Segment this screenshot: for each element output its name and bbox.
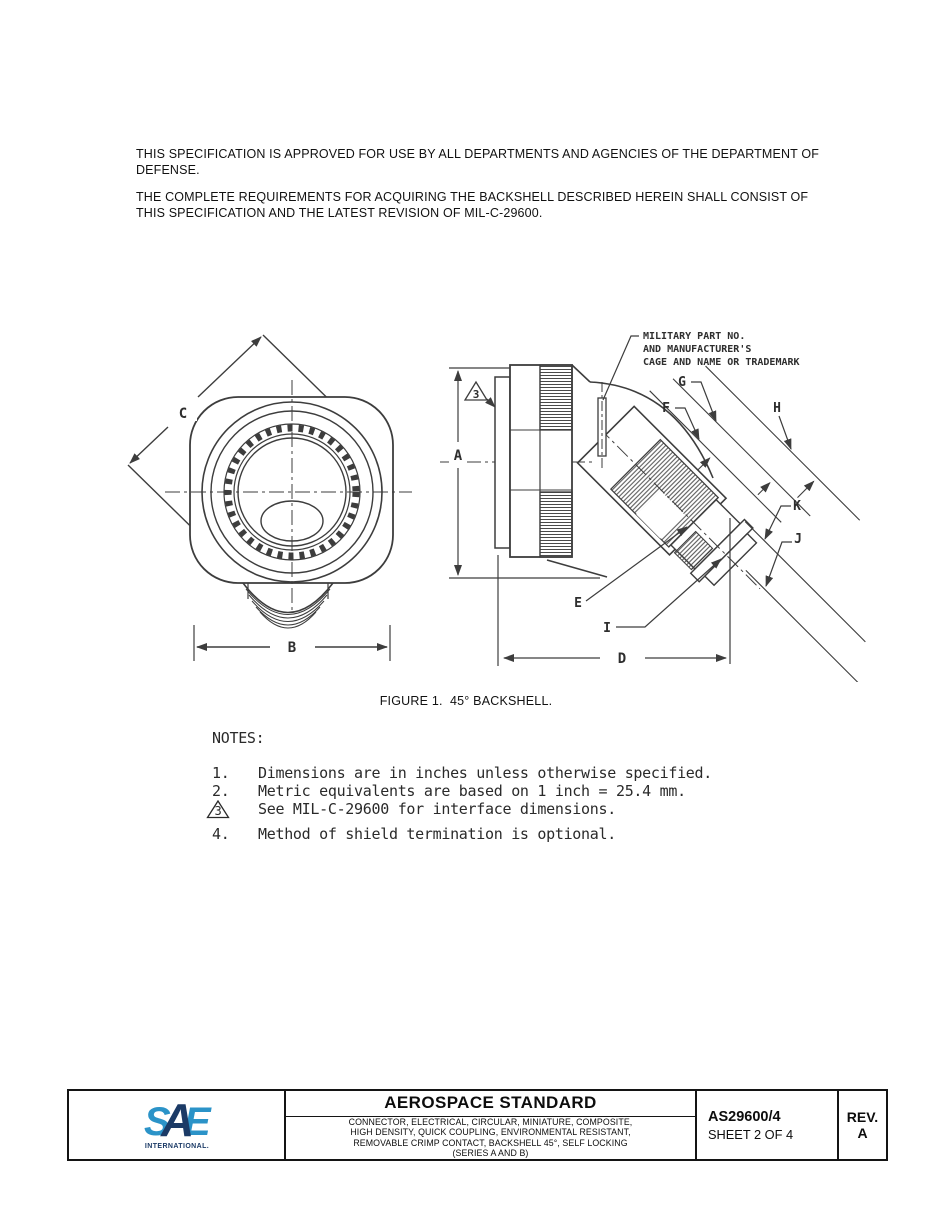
figure-1-drawing: C B: [110, 320, 890, 682]
document-number: AS29600/4: [708, 1109, 837, 1125]
note-flag-leader: [487, 399, 495, 407]
approval-paragraph: THIS SPECIFICATION IS APPROVED FOR USE B…: [136, 147, 826, 178]
description-line: HIGH DENSITY, QUICK COUPLING, ENVIRONMEN…: [350, 1127, 630, 1138]
notes-section: NOTES: 1. Dimensions are in inches unles…: [212, 729, 712, 845]
angled-tube-assembly: [571, 343, 870, 682]
logo-letter-a: A: [160, 1099, 194, 1146]
notes-heading: NOTES:: [212, 729, 712, 747]
dim-label-f: F: [662, 401, 670, 416]
description-line: (SERIES A AND B): [453, 1148, 529, 1159]
dim-label-i: I: [603, 621, 611, 636]
sheet-number: SHEET 2 OF 4: [708, 1127, 837, 1142]
interface-flange: [495, 377, 510, 548]
callout-line-2: AND MANUFACTURER'S: [643, 344, 751, 355]
note-number: 3: [212, 802, 258, 827]
note-flag-number: 3: [473, 388, 480, 401]
dim-label-a: A: [454, 448, 463, 464]
dim-label-h: H: [773, 401, 781, 416]
note-text: Method of shield termination is optional…: [258, 827, 712, 845]
dim-label-j: J: [794, 532, 802, 547]
thread-line: [256, 607, 320, 625]
requirements-paragraph: THE COMPLETE REQUIREMENTS FOR ACQUIRING …: [136, 190, 836, 221]
backshell-front-view: C B: [110, 325, 420, 670]
figure-caption: FIGURE 1. 45° BACKSHELL.: [136, 694, 796, 708]
dim-label-c: C: [179, 406, 187, 422]
document-page: { "intro": { "p1": "THIS SPECIFICATION I…: [0, 0, 950, 1230]
revision-value: A: [857, 1125, 867, 1141]
callout-line-1: MILITARY PART NO.: [643, 331, 745, 342]
thread-line: [246, 589, 330, 615]
note-number: 4.: [212, 827, 258, 845]
revision-label: REV.: [847, 1109, 878, 1125]
knurl-band-bottom: [540, 492, 572, 557]
description-line: REMOVABLE CRIMP CONTACT, BACKSHELL 45°, …: [353, 1138, 627, 1149]
backshell-side-view: A 3 MILITARY PART NO. AND MANUFACTURER'S…: [435, 320, 870, 682]
title-block: S E A INTERNATIONAL. AEROSPACE STANDARD …: [67, 1089, 888, 1161]
notes-list: 1. Dimensions are in inches unless other…: [212, 766, 712, 845]
note-flag-triangle-icon: 3: [206, 800, 230, 822]
note-item: 3 See MIL-C-29600 for interface dimensio…: [212, 802, 712, 827]
dim-label-d: D: [618, 651, 626, 667]
part-number-callout: MILITARY PART NO. AND MANUFACTURER'S CAG…: [643, 331, 800, 368]
svg-text:3: 3: [215, 804, 222, 818]
description-line: CONNECTOR, ELECTRICAL, CIRCULAR, MINIATU…: [349, 1117, 633, 1128]
dim-c-line: [130, 427, 168, 463]
document-number-cell: AS29600/4 SHEET 2 OF 4: [697, 1091, 839, 1159]
dim-c-line: [198, 337, 261, 397]
knurl-band-top: [540, 365, 572, 430]
callout-line-3: CAGE AND NAME OR TRADEMARK: [643, 357, 800, 368]
note-item: 4. Method of shield termination is optio…: [212, 827, 712, 845]
sae-logo: S E A INTERNATIONAL.: [138, 1099, 216, 1151]
standard-description: CONNECTOR, ELECTRICAL, CIRCULAR, MINIATU…: [286, 1117, 695, 1159]
dim-label-b: B: [288, 640, 296, 656]
title-cell: AEROSPACE STANDARD CONNECTOR, ELECTRICAL…: [286, 1091, 697, 1159]
logo-international-text: INTERNATIONAL.: [144, 1143, 208, 1150]
dim-label-g: G: [678, 375, 686, 390]
dim-label-e: E: [574, 596, 582, 611]
coupling-nut: [495, 365, 572, 557]
note-text: See MIL-C-29600 for interface dimensions…: [258, 802, 712, 827]
aerospace-standard-heading: AEROSPACE STANDARD: [286, 1091, 695, 1117]
sae-logo-cell: S E A INTERNATIONAL.: [69, 1091, 286, 1159]
dim-label-k: K: [793, 499, 801, 514]
revision-cell: REV. A: [839, 1091, 886, 1159]
